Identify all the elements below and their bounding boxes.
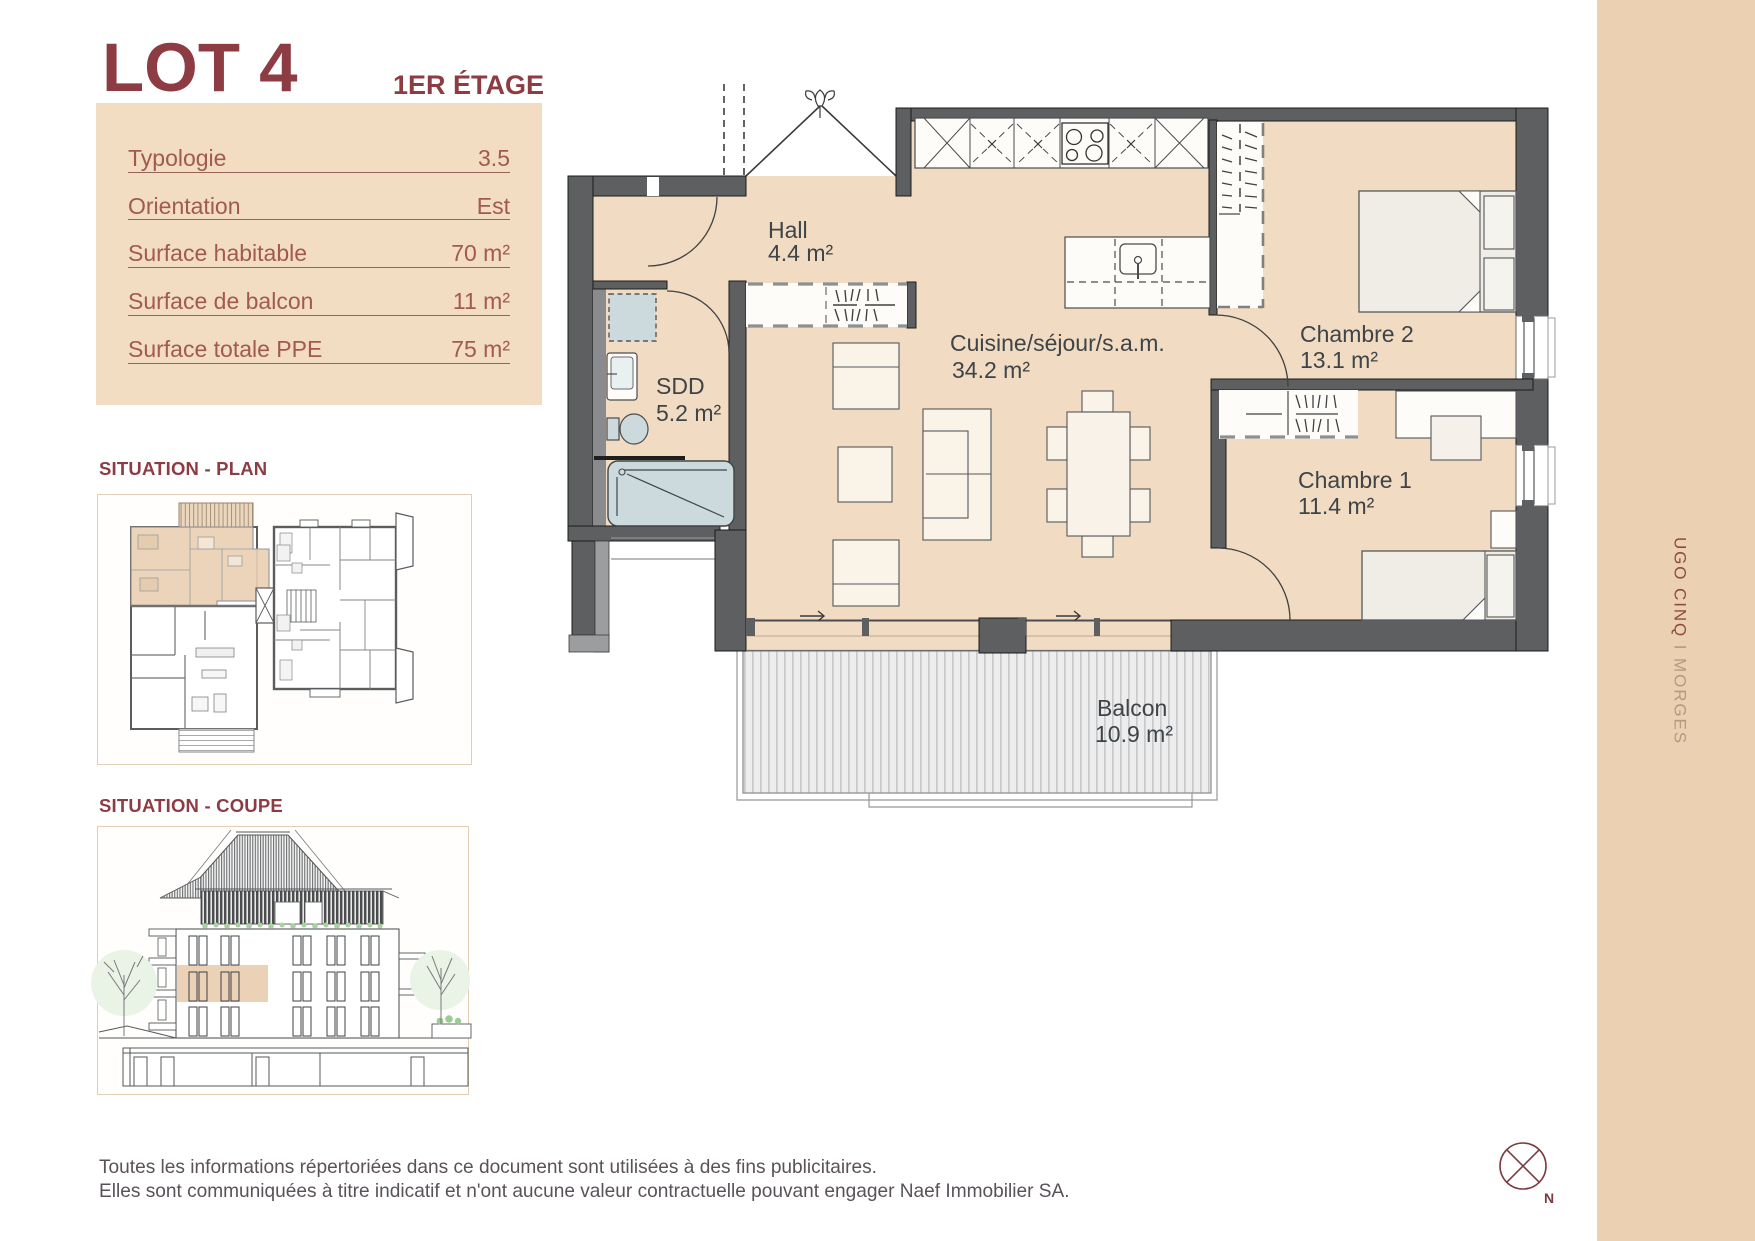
svg-text:SDD: SDD <box>656 373 705 399</box>
svg-text:5.2 m²: 5.2 m² <box>656 400 722 426</box>
svg-text:Cuisine/séjour/s.a.m.: Cuisine/séjour/s.a.m. <box>950 330 1165 356</box>
svg-text:4.4 m²: 4.4 m² <box>768 240 834 266</box>
svg-text:11.4 m²: 11.4 m² <box>1298 493 1375 519</box>
svg-text:Chambre 1: Chambre 1 <box>1298 467 1412 493</box>
svg-text:Chambre 2: Chambre 2 <box>1300 321 1414 347</box>
svg-text:13.1 m²: 13.1 m² <box>1300 347 1378 373</box>
svg-text:10.9 m²: 10.9 m² <box>1095 721 1173 747</box>
svg-text:Balcon: Balcon <box>1097 695 1167 721</box>
svg-text:N: N <box>1544 1190 1554 1206</box>
svg-text:34.2 m²: 34.2 m² <box>952 357 1030 383</box>
